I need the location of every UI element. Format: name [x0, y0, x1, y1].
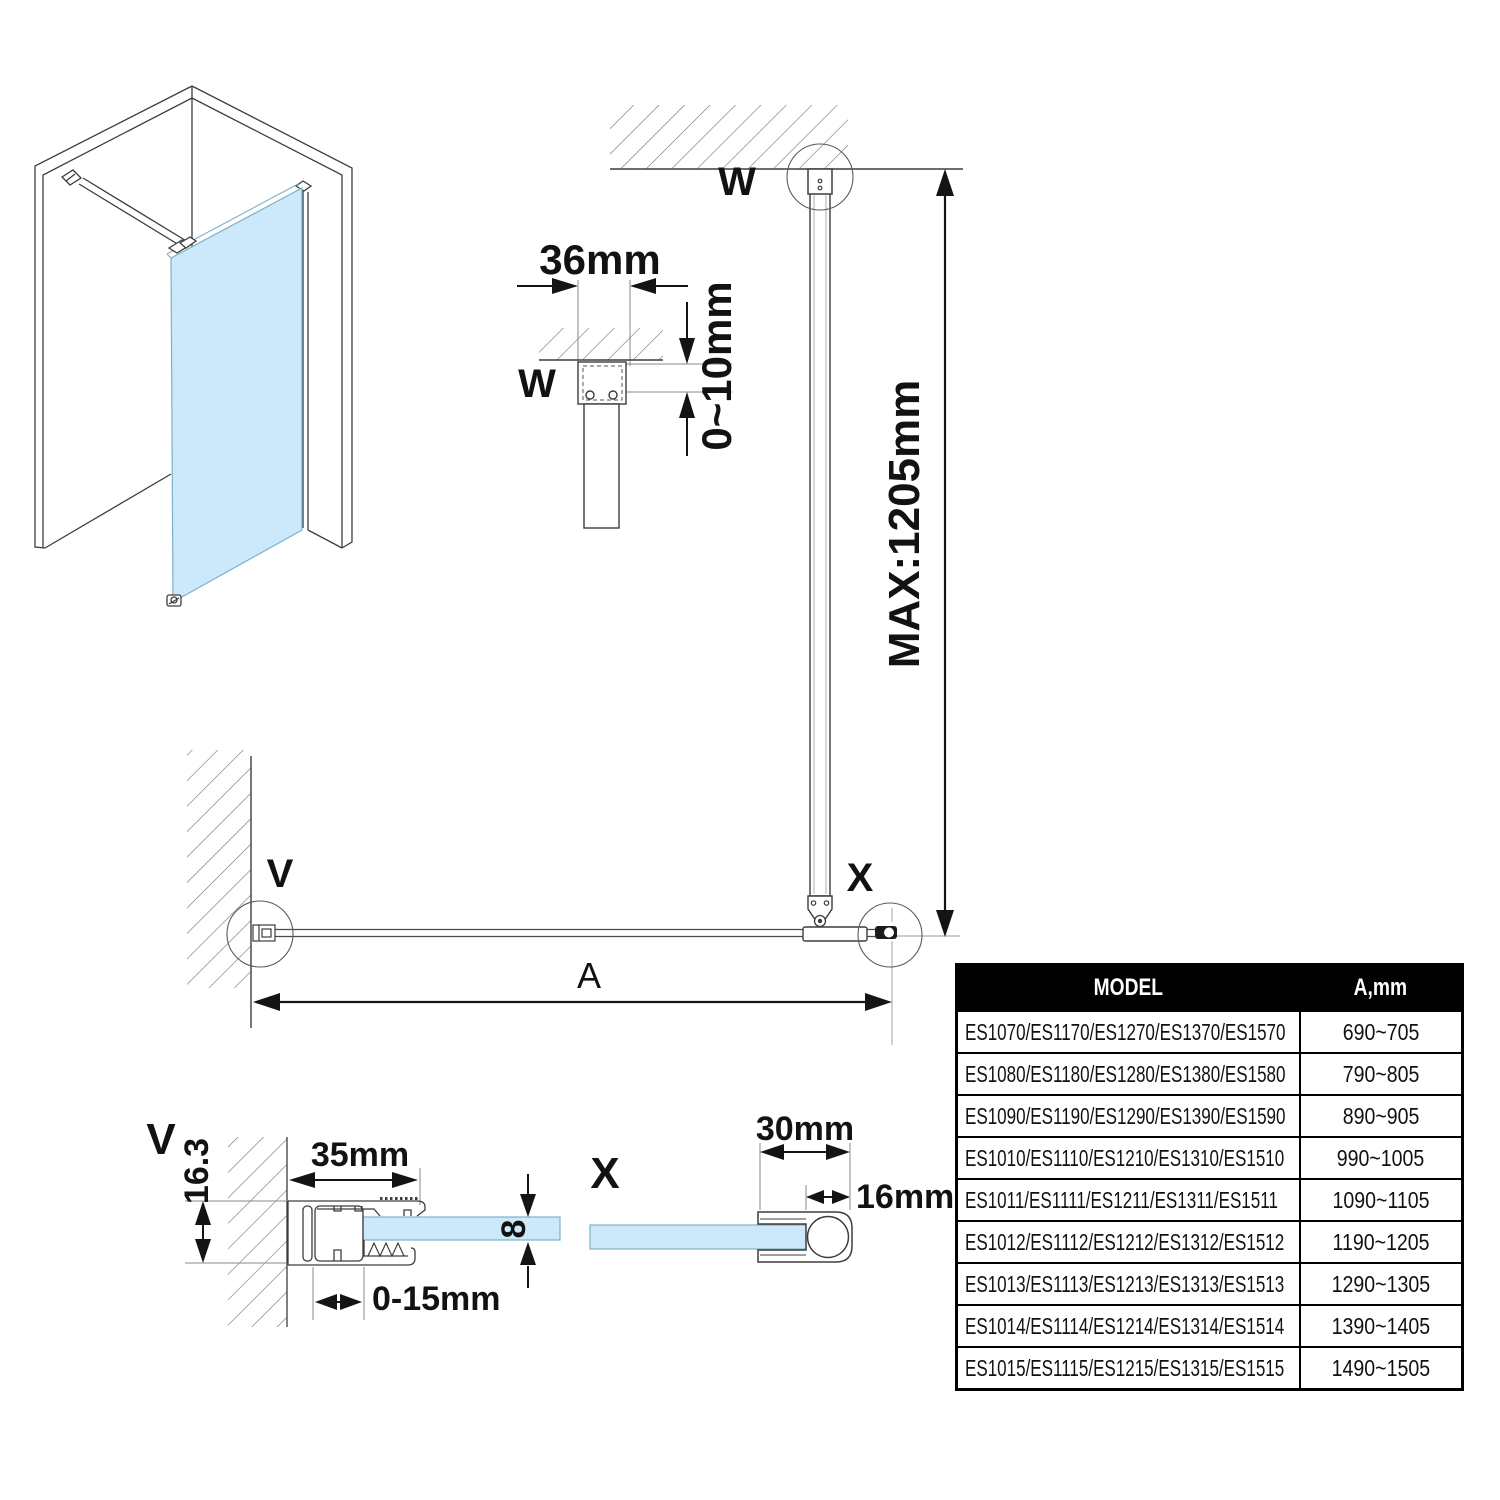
a-mm-cell: 1190~1205	[1300, 1221, 1463, 1263]
model-cell: ES1011/ES1111/ES1211/ES1311/ES1511	[957, 1179, 1300, 1221]
dim-label-0-10mm: 0~10mm	[694, 271, 740, 461]
left-wall	[35, 86, 192, 548]
a-mm-cell: 1390~1405	[1300, 1305, 1463, 1347]
detail-v-wall-hatch	[228, 1137, 287, 1327]
glass-clamp-block	[803, 927, 867, 941]
table-row: ES1013/ES1113/ES1213/ES1313/ES15131290~1…	[957, 1263, 1463, 1305]
dim-label-30mm: 30mm	[745, 1112, 865, 1146]
dim-label-8: 8	[496, 1209, 532, 1249]
model-size-table: MODEL A,mm ES1070/ES1170/ES1270/ES1370/E…	[955, 963, 1464, 1391]
model-cell: ES1010/ES1110/ES1210/ES1310/ES1510	[957, 1137, 1300, 1179]
dim-label-35mm: 35mm	[295, 1138, 425, 1172]
clamp-spring	[368, 1243, 404, 1256]
support-bar	[810, 193, 830, 896]
dim-label-max-height: MAX:1205mm	[880, 379, 930, 669]
dim-label-a: A	[562, 956, 616, 996]
elevation-w-label: W	[712, 162, 762, 202]
detail-x-label: X	[578, 1152, 632, 1196]
shower-panel-technical-drawing: 36mm 0~10mm W W MAX:1205mm V X A V 16.3 …	[0, 0, 1500, 1500]
centerlines	[892, 908, 960, 1045]
a-mm-cell: 790~805	[1300, 1053, 1463, 1095]
support-bar-section	[808, 1217, 849, 1258]
table-row: ES1090/ES1190/ES1290/ES1390/ES1590890~90…	[957, 1095, 1463, 1137]
table-row: ES1070/ES1170/ES1270/ES1370/ES1570690~70…	[957, 1011, 1463, 1053]
elevation-wall-hatch	[187, 750, 251, 988]
model-cell: ES1012/ES1112/ES1212/ES1312/ES1512	[957, 1221, 1300, 1263]
a-mm-cell: 990~1005	[1300, 1137, 1463, 1179]
model-cell: ES1090/ES1190/ES1290/ES1390/ES1590	[957, 1095, 1300, 1137]
dim-label-36mm: 36mm	[520, 240, 680, 280]
model-cell: ES1013/ES1113/ES1213/ES1313/ES1513	[957, 1263, 1300, 1305]
table-row: ES1080/ES1180/ES1280/ES1380/ES1580790~80…	[957, 1053, 1463, 1095]
dim-0-15mm	[313, 1267, 364, 1320]
model-cell: ES1015/ES1115/ES1215/ES1315/ES1515	[957, 1347, 1300, 1390]
a-mm-cell: 1290~1305	[1300, 1263, 1463, 1305]
a-mm-cell: 1490~1505	[1300, 1347, 1463, 1390]
dim-16mm	[806, 1185, 850, 1210]
model-cell: ES1014/ES1114/ES1214/ES1314/ES1514	[957, 1305, 1300, 1347]
a-mm-cell: 690~705	[1300, 1011, 1463, 1053]
a-mm-column-header: A,mm	[1300, 965, 1463, 1012]
dim-label-16-3: 16.3	[177, 1121, 217, 1221]
wall-fitting	[253, 925, 275, 941]
model-column-header: MODEL	[957, 965, 1300, 1012]
model-cell: ES1080/ES1180/ES1280/ES1380/ES1580	[957, 1053, 1300, 1095]
dim-label-0-15mm: 0-15mm	[372, 1282, 532, 1316]
table-header-row: MODEL A,mm	[957, 965, 1463, 1012]
table-row: ES1011/ES1111/ES1211/ES1311/ES15111090~1…	[957, 1179, 1463, 1221]
glass-end-cap	[875, 926, 897, 939]
a-mm-cell: 1090~1105	[1300, 1179, 1463, 1221]
ceiling-mount-bracket	[808, 169, 832, 194]
elevation-x-label: X	[838, 858, 882, 898]
detail-x-glass	[590, 1225, 808, 1249]
glass-edge-lines	[255, 930, 875, 937]
detail-w-label: W	[512, 364, 562, 404]
model-cell: ES1070/ES1170/ES1270/ES1370/ES1570	[957, 1011, 1300, 1053]
table-row: ES1014/ES1114/ES1214/ES1314/ES15141390~1…	[957, 1305, 1463, 1347]
ceiling-hatch	[539, 328, 663, 360]
table-row: ES1015/ES1115/ES1215/ES1315/ES15151490~1…	[957, 1347, 1463, 1390]
a-mm-cell: 890~905	[1300, 1095, 1463, 1137]
table-row: ES1010/ES1110/ES1210/ES1310/ES1510990~10…	[957, 1137, 1463, 1179]
table-row: ES1012/ES1112/ES1212/ES1312/ES15121190~1…	[957, 1221, 1463, 1263]
dim-max-height	[936, 169, 954, 937]
ceiling-bracket	[578, 362, 626, 528]
bracket-bar	[584, 404, 619, 528]
bar-glass-junction	[803, 896, 867, 941]
elevation-v-label: V	[258, 854, 302, 894]
